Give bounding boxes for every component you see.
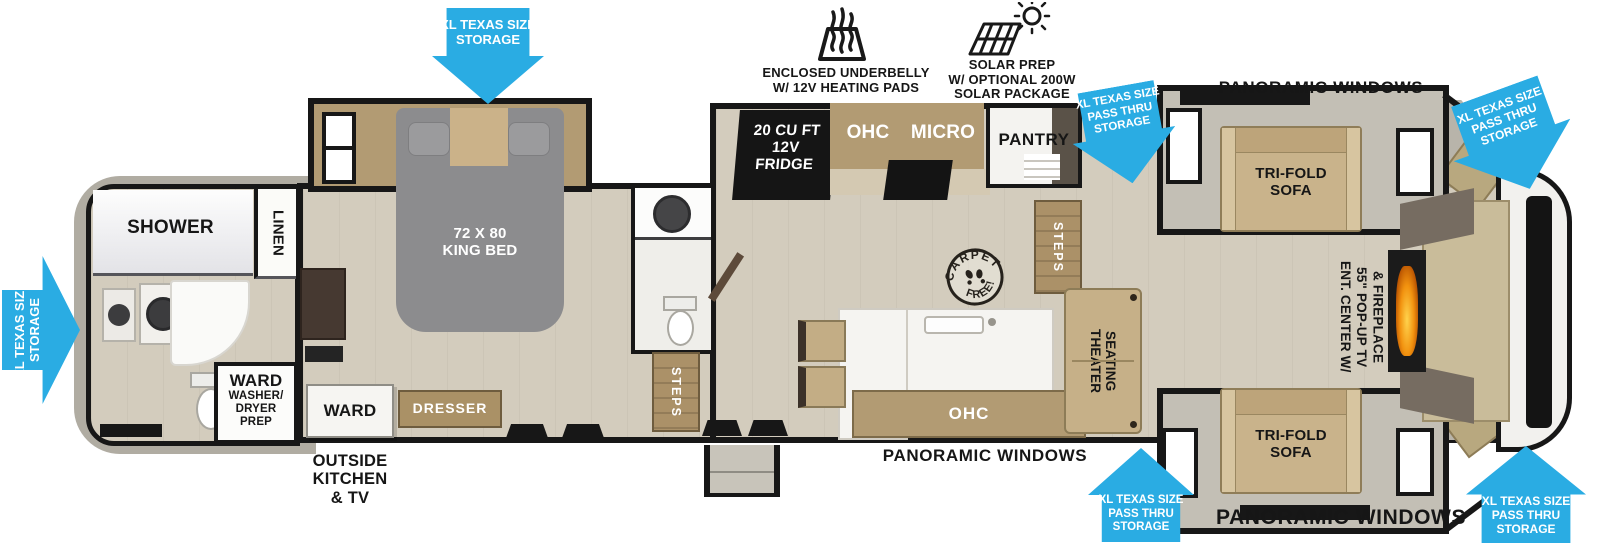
island-sink [924, 316, 984, 334]
linen-label: LINEN [269, 210, 286, 256]
linen-cabinet: LINEN [254, 189, 296, 279]
theater-seating: THEATER SEATING [1064, 288, 1142, 434]
bottom-slide-window-right [1396, 428, 1434, 496]
pantry-shelves [1024, 154, 1060, 180]
island-faucet [988, 318, 996, 326]
bedroom-door-threshold [506, 424, 548, 438]
fireplace [1388, 250, 1426, 372]
solar-prep-icon [962, 2, 1054, 58]
mid-bathroom [631, 184, 715, 354]
panoramic-windows-bottom-mid-label: PANORAMIC WINDOWS [876, 446, 1094, 465]
trifold-sofa-bottom-label: TRI-FOLD SOFA [1232, 428, 1350, 462]
sink-bowl-icon [653, 195, 691, 233]
kitchen-island [906, 308, 1054, 396]
bedroom-storage-arrow: XL TEXAS SIZE STORAGE [432, 8, 544, 104]
ohc-upper-label: OHC [836, 122, 900, 143]
window-mullion [326, 146, 352, 150]
dresser: DRESSER [398, 390, 502, 428]
shower-label: SHOWER [98, 217, 243, 238]
passthru-storage-arrow-top-mid: XL TEXAS SIZE PASS THRU STORAGE [1064, 78, 1183, 193]
toilet-tank-mid [663, 296, 697, 311]
passthru-storage-arrow-bottom-mid: XL TEXAS SIZE PASS THRU STORAGE [1088, 448, 1194, 542]
pantry-label: PANTRY [990, 130, 1078, 149]
bedroom-window [322, 112, 356, 184]
overhead-cabinet-lower: OHC [852, 390, 1086, 438]
rv-floorplan-canvas: ENCLOSED UNDERBELLY W/ 12V HEATING PADS … [0, 0, 1600, 543]
refrigerator: 20 CU FT 12V FRIDGE [732, 110, 838, 200]
pillow-right [508, 122, 550, 156]
front-floor-mat [100, 424, 162, 437]
rear-window [1526, 196, 1552, 428]
trifold-sofa-top-label: TRI-FOLD SOFA [1232, 166, 1350, 200]
cupholder-icon-2 [1130, 421, 1137, 428]
panoramic-windows-top-label: PANORAMIC WINDOWS [1212, 78, 1430, 97]
ward-washer-dryer-prep: WARD WASHER/ DRYER PREP [214, 362, 298, 444]
entry-door-threshold-2 [748, 420, 788, 436]
front-storage-arrow: XL TEXAS SIZE STORAGE [2, 256, 80, 404]
living-steps: STEPS [1034, 200, 1082, 294]
passthru-storage-arrow-bottom-right: XL TEXAS SIZE PASS THRU STORAGE [1466, 446, 1586, 543]
toilet-bowl-mid [667, 310, 694, 346]
entry-steps [704, 445, 780, 497]
bar-stool-1 [798, 320, 846, 362]
bedroom-bench [305, 346, 343, 362]
entry-door-threshold [702, 420, 742, 436]
enclosed-underbelly-icon [806, 2, 878, 64]
bar-stool-2 [798, 366, 846, 408]
washer-door-icon [108, 304, 130, 326]
pillow-left [408, 122, 450, 156]
cupholder-icon [1130, 294, 1137, 301]
fireplace-flame-icon [1396, 266, 1418, 356]
bed-runner [450, 108, 508, 166]
seat-divider [1072, 360, 1134, 362]
underbelly-label: ENCLOSED UNDERBELLY W/ 12V HEATING PADS [750, 66, 942, 95]
micro-label: MICRO [900, 122, 986, 143]
washer-panel [102, 288, 136, 342]
bedroom-door-threshold-2 [562, 424, 604, 438]
bedroom-wardrobe: WARD [306, 384, 394, 438]
panoramic-windows-bottom-right-label: PANORAMIC WINDOWS [1188, 506, 1494, 530]
king-bed: 72 X 80 KING BED [396, 108, 564, 332]
top-slide-window-right [1396, 128, 1434, 196]
outside-kitchen-label: OUTSIDE KITCHEN & TV [290, 452, 410, 507]
king-bed-label: 72 X 80 KING BED [396, 226, 564, 260]
range-cooktop [883, 160, 953, 200]
entry-step-line [710, 471, 774, 473]
ent-center-label: ENT. CENTER W/ 55" POP-UP TV & FIREPLACE [1336, 228, 1386, 406]
bedroom-steps: STEPS [652, 352, 700, 432]
bedroom-tv-cabinet [300, 268, 346, 340]
trifold-sofa-top: TRI-FOLD SOFA [1220, 126, 1362, 232]
